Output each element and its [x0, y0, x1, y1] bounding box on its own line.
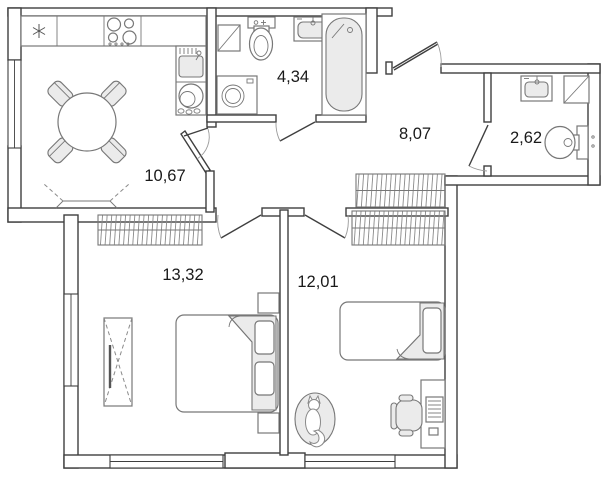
- double-bed: [176, 315, 278, 412]
- bathroom-door: [276, 122, 315, 141]
- kitchen-niche: [44, 184, 129, 208]
- hallway: 8,07: [356, 125, 445, 207]
- bedroom-left-door: [218, 215, 261, 238]
- bedroom-left-side-window: [64, 294, 78, 386]
- single-bed: [340, 302, 445, 360]
- bedroom-left-wardrobe: [98, 215, 202, 245]
- dining-table: [58, 93, 116, 151]
- pillow: [423, 308, 441, 353]
- wc-toilet: [545, 126, 594, 159]
- kitchen-area-label: 10,67: [144, 167, 185, 185]
- mirror-wardrobe: [104, 318, 132, 406]
- desk-chair: [391, 395, 422, 436]
- bedroom-left-bottom-window: [110, 455, 223, 468]
- desk: [421, 380, 445, 448]
- bedroom-left: 13,32: [98, 215, 279, 433]
- bedroom-right-area-label: 12,01: [297, 273, 338, 291]
- wc-shelf: [564, 76, 589, 103]
- toilet: [248, 17, 275, 60]
- entrance-door: [393, 42, 441, 70]
- bedroom-right-door: [305, 215, 348, 238]
- hallway-wardrobe: [356, 174, 445, 207]
- wc: 2,62: [510, 76, 594, 159]
- bedroom-left-area-label: 13,32: [162, 266, 203, 284]
- pillow: [255, 321, 274, 354]
- bathtub: [322, 14, 366, 115]
- hallway-area-label: 8,07: [399, 125, 431, 143]
- bedroom-right-wardrobe: [352, 211, 445, 245]
- bedroom-right-bottom-window: [305, 455, 395, 468]
- cat-rug: [295, 393, 335, 447]
- floor-plan: 10,67: [0, 0, 605, 480]
- pillow: [255, 362, 274, 395]
- washing-machine: [217, 76, 257, 114]
- bedroom-right: 12,01: [295, 211, 445, 448]
- floor-plan-drawing: 10,67: [0, 0, 605, 480]
- nightstand: [258, 293, 279, 313]
- bathroom: 4,34: [217, 14, 366, 115]
- kitchen-left-window: [8, 60, 21, 148]
- bathroom-area-label: 4,34: [277, 68, 309, 86]
- kitchen: 10,67: [21, 16, 206, 208]
- wc-door: [469, 125, 488, 171]
- wc-sink: [521, 76, 552, 101]
- nightstand: [258, 413, 279, 433]
- bathroom-shelf: [218, 25, 240, 51]
- wc-area-label: 2,62: [510, 129, 542, 147]
